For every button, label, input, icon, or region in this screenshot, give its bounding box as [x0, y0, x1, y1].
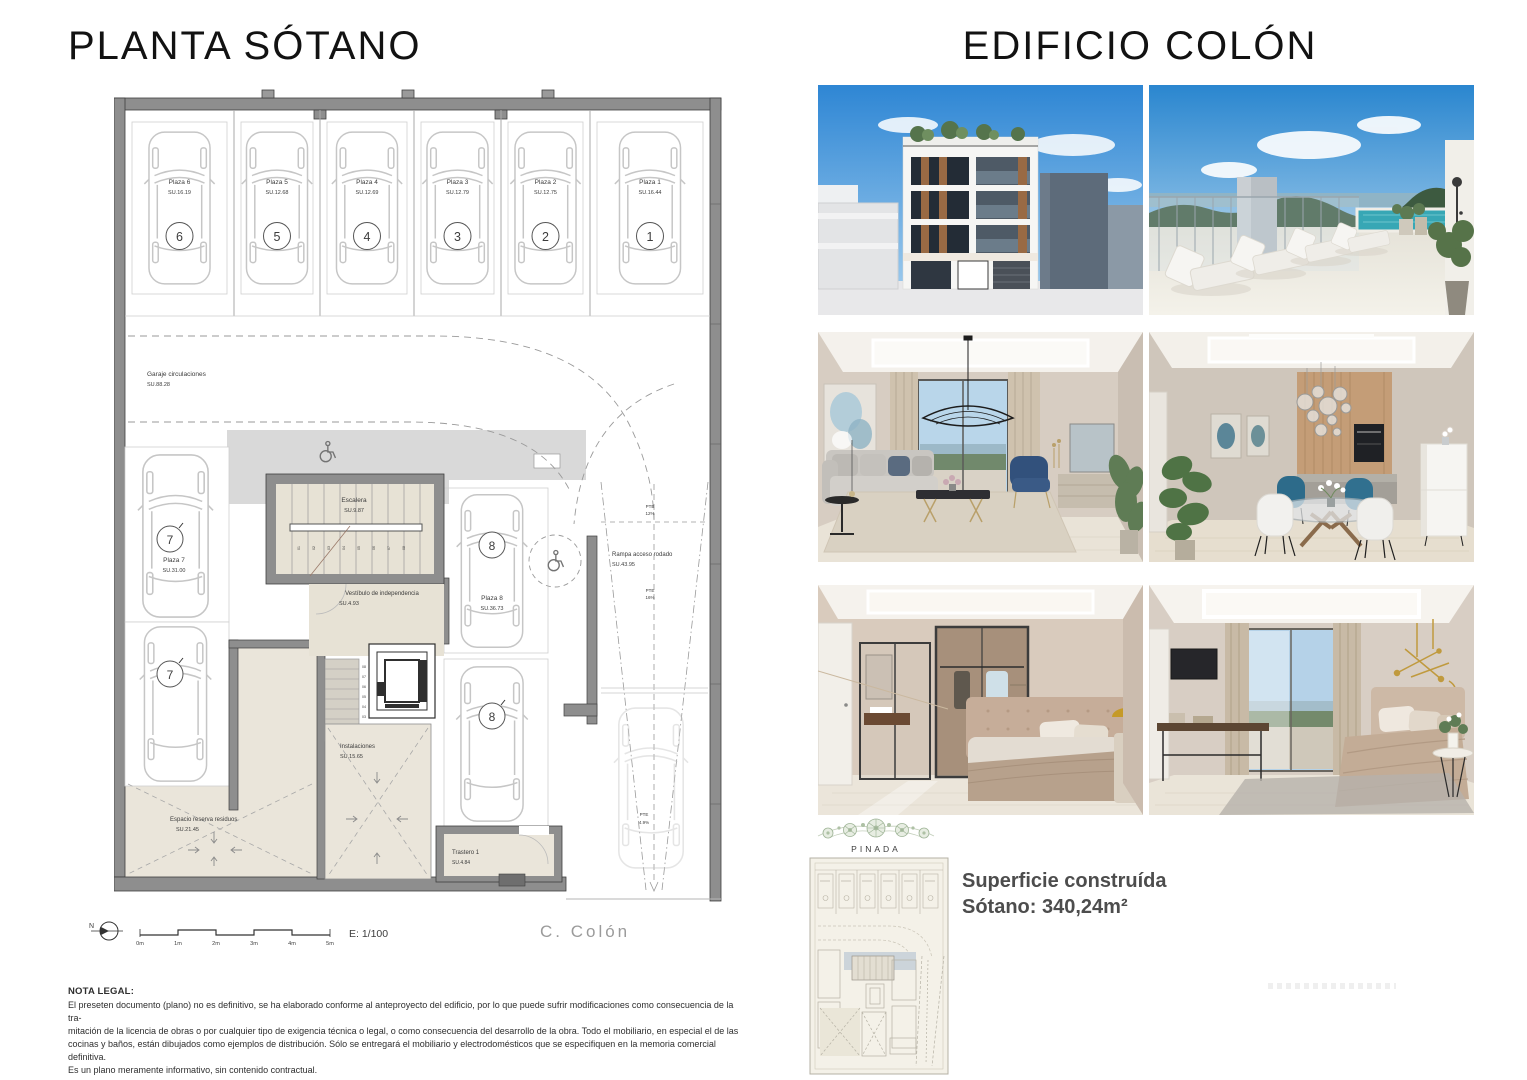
- svg-text:03: 03: [362, 715, 366, 719]
- svg-text:01: 01: [297, 546, 301, 550]
- residuos-name: Espacio reserva residuos: [170, 817, 237, 823]
- street-label: C. Colón: [540, 922, 630, 942]
- plaza7-stalls: 7 Plaza 7 SU.31.00 7: [125, 447, 229, 786]
- stall-number: 7: [167, 668, 174, 682]
- wall-frames: [1211, 414, 1269, 458]
- door: [1149, 629, 1169, 779]
- scale-bar: N 0m 1m 2m 3m 4m 5m E: 1/100: [85, 915, 445, 955]
- svg-text:07: 07: [362, 675, 366, 679]
- mini-floor-plan: [808, 856, 950, 1076]
- parking-stall: Plaza 6 SU.16.19 6: [132, 122, 227, 294]
- stall-number: 6: [176, 230, 183, 244]
- pte-value: 12%: [645, 511, 654, 516]
- legal-title: NOTA LEGAL:: [68, 986, 748, 997]
- ceiling-cove: [873, 340, 1088, 366]
- plaza7-area: SU.31.00: [163, 568, 186, 574]
- stall-number: 8: [489, 710, 496, 724]
- main-building: [903, 121, 1038, 289]
- scale-ratio: E: 1/100: [349, 928, 388, 940]
- svg-text:5m: 5m: [326, 941, 334, 947]
- stall-label: Plaza 3: [447, 179, 469, 186]
- svg-text:04: 04: [362, 705, 366, 709]
- photo-rooftop-pool: [1149, 85, 1474, 315]
- summary-line2: Sótano: 340,24m²: [962, 894, 1167, 920]
- scale-bar-line: [140, 930, 330, 935]
- brand-name: PINADA: [851, 844, 901, 854]
- plaza7-name: Plaza 7: [163, 557, 185, 564]
- mini-stair: [852, 956, 894, 980]
- stall-area: SU.16.19: [168, 190, 191, 196]
- svg-text:1m: 1m: [174, 941, 182, 947]
- residuos-area: SU.21.45: [176, 827, 199, 833]
- ceiling-cove: [1204, 591, 1419, 617]
- stall-number: 3: [454, 230, 461, 244]
- tv: [1171, 649, 1217, 679]
- plaza8-name: Plaza 8: [481, 595, 503, 602]
- photo-bedroom-view: [1149, 585, 1474, 815]
- stall-number: 8: [489, 539, 496, 553]
- ceiling-cove: [868, 591, 1093, 613]
- bathroom-glass: [860, 643, 930, 779]
- svg-text:04: 04: [342, 546, 346, 550]
- garaje-name: Garaje circulaciones: [147, 371, 207, 378]
- svg-text:08: 08: [402, 546, 406, 550]
- svg-text:2m: 2m: [212, 941, 220, 947]
- pte-label: PTE: [640, 812, 649, 817]
- stall-number: 7: [167, 533, 174, 547]
- instalaciones-room: Instalaciones SU.15.65: [325, 724, 431, 879]
- parking-stall: Plaza 1 SU.16.44 1: [597, 122, 703, 294]
- legal-line: mitación de la licencia de obras o por c…: [68, 1025, 748, 1038]
- photo-living-room: [818, 332, 1143, 562]
- bed: [966, 697, 1136, 801]
- wood-wall-oven: [1297, 372, 1392, 474]
- trastero-area: SU.4.84: [452, 860, 470, 866]
- window: [1247, 629, 1335, 771]
- instalaciones-area: SU.15.65: [340, 754, 363, 760]
- escalera-name: Escalera: [341, 497, 367, 504]
- svg-text:03: 03: [327, 546, 331, 550]
- instalaciones-name: Instalaciones: [340, 744, 375, 750]
- north-label: N: [89, 923, 94, 930]
- stall-label: Plaza 2: [535, 179, 557, 186]
- svg-text:06: 06: [372, 546, 376, 550]
- stall-number: 1: [647, 230, 654, 244]
- stall-area: SU.12.68: [266, 190, 289, 196]
- svg-text:3m: 3m: [250, 941, 258, 947]
- stall-number: 2: [542, 230, 549, 244]
- accessible-stall-circle: [529, 535, 581, 587]
- built-area-summary: Superficie construída Sótano: 340,24m²: [962, 868, 1167, 920]
- legal-line: El preseten documento (plano) no es defi…: [68, 999, 748, 1025]
- legal-line: cocinas y baños, están dibujados como ej…: [68, 1038, 748, 1064]
- stall-area: SU.12.79: [446, 190, 469, 196]
- stall-number: 5: [274, 230, 281, 244]
- plaza8-area: SU.36.73: [481, 606, 504, 612]
- elevator: [369, 644, 435, 718]
- brochure-page: PLANTA SÓTANO EDIFICIO COLÓN: [0, 0, 1527, 1080]
- stall-area: SU.16.44: [639, 190, 662, 196]
- vestibulo-name: Vestíbulo de independencia: [345, 591, 419, 597]
- parking-stalls-top: Plaza 6 SU.16.19 6 Plaza 5 SU.12.68 5 Pl…: [132, 122, 703, 294]
- garaje-label: Garaje circulaciones SU.88.28: [147, 371, 207, 388]
- trastero-room: Trastero 1 SU.4.84: [436, 826, 562, 886]
- escalera-area: SU.9.87: [344, 508, 364, 514]
- svg-text:06: 06: [362, 685, 366, 689]
- parking-stall: Plaza 4 SU.12.69 4: [327, 122, 407, 294]
- rampa-area: SU.43.95: [612, 562, 635, 568]
- plaza8-stalls: 8 Plaza 8 SU.36.73 8: [444, 488, 548, 827]
- door: [1149, 392, 1167, 532]
- parking-stall: Plaza 2 SU.12.75 2: [508, 122, 583, 294]
- svg-text:05: 05: [357, 546, 361, 550]
- svg-text:08: 08: [362, 665, 366, 669]
- page-title-left: PLANTA SÓTANO: [68, 24, 421, 69]
- photo-bedroom-wardrobe: [818, 585, 1143, 815]
- rug: [824, 492, 1076, 552]
- vestibulo-area: SU.4.93: [339, 601, 359, 607]
- stair-handrail: [290, 524, 422, 531]
- ceiling-cove: [1209, 338, 1414, 362]
- mirror: [1070, 424, 1114, 472]
- legal-note: NOTA LEGAL: El preseten documento (plano…: [68, 986, 748, 1077]
- pte-value: 4.9%: [639, 820, 649, 825]
- stall-area: SU.12.75: [534, 190, 557, 196]
- stall-label: Plaza 4: [356, 179, 378, 186]
- parking-bay-dividers: [125, 110, 710, 316]
- photo-dining-kitchen: [1149, 332, 1474, 562]
- white-cabinet: [1421, 427, 1467, 546]
- pte-value: 16%: [645, 595, 654, 600]
- svg-text:02: 02: [312, 546, 316, 550]
- parking-stall: Plaza 3 SU.12.79 3: [421, 122, 494, 294]
- svg-text:0m: 0m: [136, 941, 144, 947]
- pte-label: PTE: [646, 588, 655, 593]
- legal-line: Es un plano meramente informativo, sin c…: [68, 1064, 748, 1077]
- photo-building-exterior: [818, 85, 1143, 315]
- scale-ticks: 0m 1m 2m 3m 4m 5m: [136, 941, 334, 947]
- trastero-name: Trastero 1: [452, 850, 480, 856]
- parking-stall: Plaza 5 SU.12.68 5: [241, 122, 313, 294]
- pte-label: PTE: [646, 504, 655, 509]
- summary-line1: Superficie construída: [962, 868, 1167, 894]
- faint-signature: [1268, 983, 1396, 989]
- rug: [1219, 773, 1474, 815]
- svg-text:05: 05: [362, 695, 366, 699]
- stall-label: Plaza 5: [266, 179, 288, 186]
- stall-label: Plaza 1: [639, 179, 661, 186]
- basement-floor-plan: Plaza 6 SU.16.19 6 Plaza 5 SU.12.68 5 Pl…: [114, 84, 726, 904]
- vent-box: [534, 454, 560, 468]
- garaje-area: SU.88.28: [147, 382, 170, 388]
- stair-block: Escalera SU.9.87 01 02 03 04 05 06 07 08: [266, 474, 444, 584]
- page-title-right: EDIFICIO COLÓN: [930, 24, 1350, 69]
- floral-garland-icon: [823, 819, 929, 838]
- rampa-name: Rampa acceso rodado: [612, 552, 673, 558]
- stall-label: Plaza 6: [169, 179, 191, 186]
- stall-number: 4: [364, 230, 371, 244]
- svg-text:4m: 4m: [288, 941, 296, 947]
- stall-area: SU.12.69: [356, 190, 379, 196]
- pinada-logo: PINADA: [806, 814, 946, 858]
- wheelchair-icon: [548, 551, 563, 571]
- svg-text:07: 07: [387, 546, 391, 550]
